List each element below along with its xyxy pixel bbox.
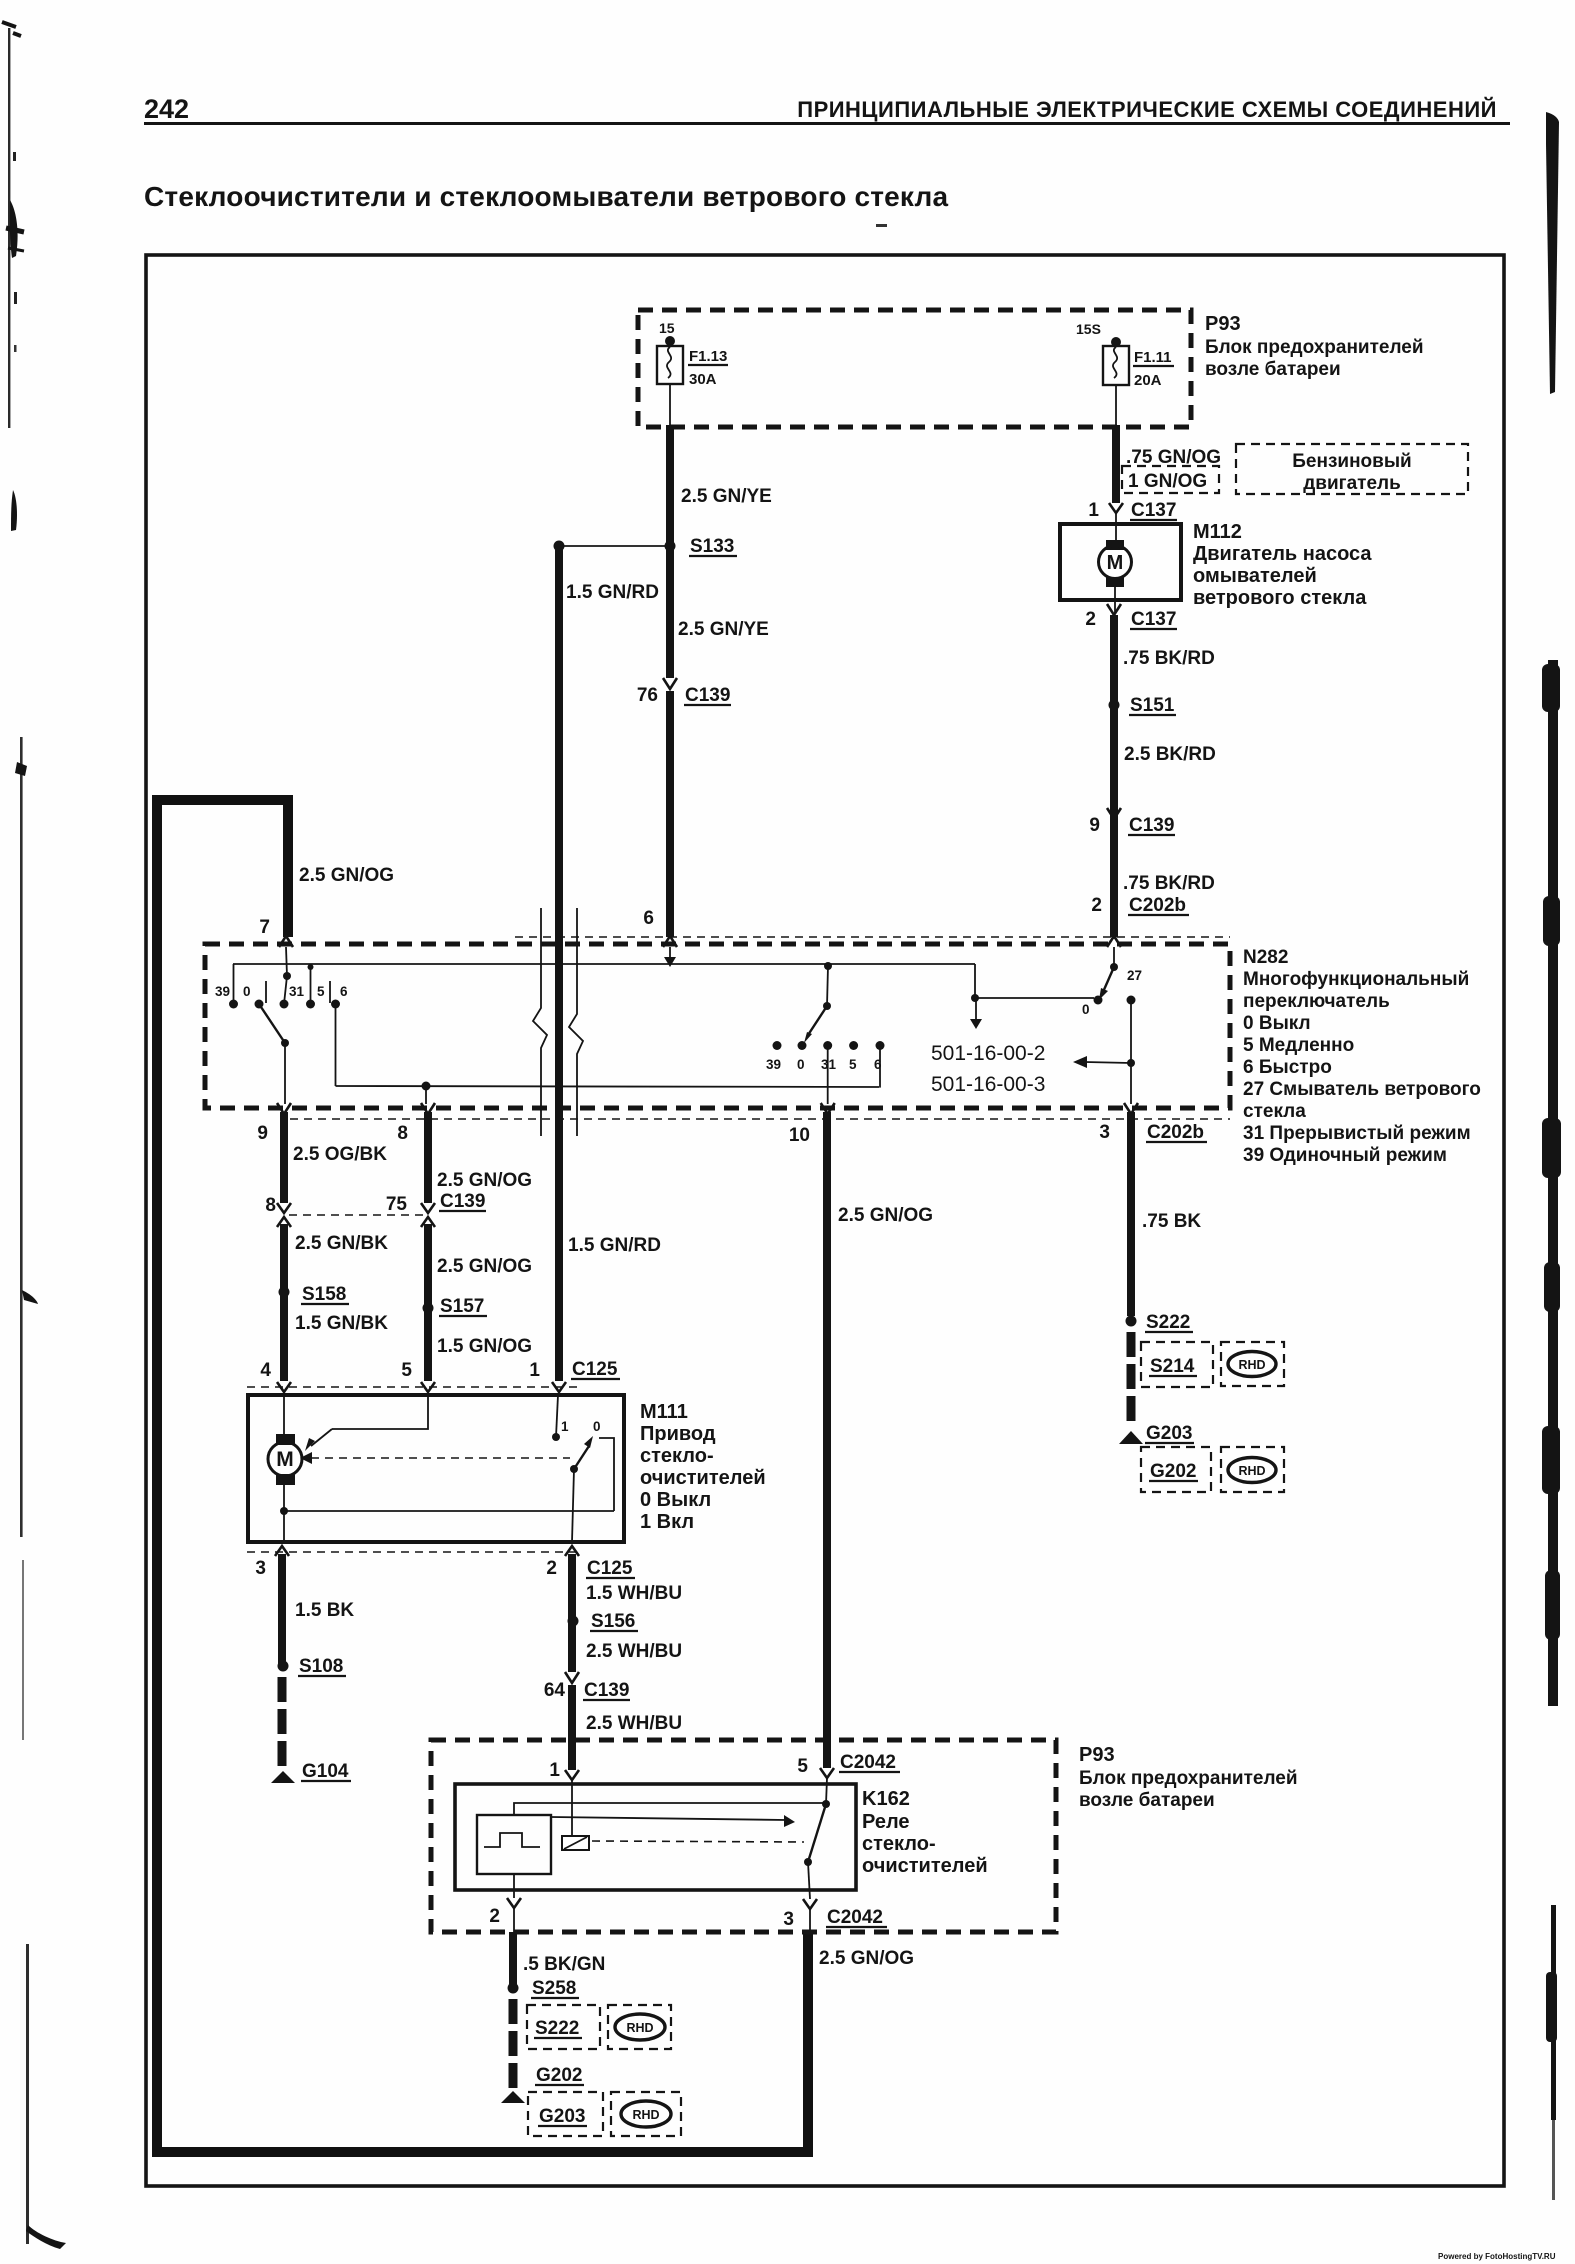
svg-text:P93: P93 bbox=[1079, 1744, 1115, 1766]
svg-text:2.5 GN/OG: 2.5 GN/OG bbox=[437, 1256, 532, 1277]
svg-text:1.5 GN/BK: 1.5 GN/BK bbox=[295, 1313, 388, 1334]
svg-text:2.5 GN/YE: 2.5 GN/YE bbox=[678, 619, 769, 640]
svg-text:5: 5 bbox=[317, 984, 325, 999]
svg-text:стекло-: стекло- bbox=[862, 1833, 936, 1855]
svg-text:10: 10 bbox=[789, 1125, 810, 1146]
svg-text:C139: C139 bbox=[685, 685, 730, 706]
svg-text:Блок предохранителей: Блок предохранителей bbox=[1205, 337, 1424, 358]
svg-text:2.5 GN/OG: 2.5 GN/OG bbox=[819, 1948, 914, 1969]
svg-text:очистителей: очистителей bbox=[862, 1855, 988, 1877]
svg-text:2.5 WH/BU: 2.5 WH/BU bbox=[586, 1641, 682, 1662]
svg-text:2: 2 bbox=[1091, 895, 1102, 916]
svg-text:39 Одиночный режим: 39 Одиночный режим bbox=[1243, 1145, 1447, 1166]
svg-text:.75 BK/RD: .75 BK/RD bbox=[1123, 873, 1215, 894]
svg-text:0: 0 bbox=[243, 984, 251, 999]
svg-text:двигатель: двигатель bbox=[1303, 473, 1401, 494]
svg-text:2.5 GN/OG: 2.5 GN/OG bbox=[437, 1170, 532, 1191]
svg-text:.5 BK/GN: .5 BK/GN bbox=[523, 1954, 605, 1975]
svg-text:39: 39 bbox=[766, 1057, 781, 1072]
svg-text:242: 242 bbox=[144, 94, 189, 124]
svg-text:1 GN/OG: 1 GN/OG bbox=[1128, 471, 1207, 492]
svg-text:ветрового стекла: ветрового стекла bbox=[1193, 587, 1367, 609]
svg-text:1: 1 bbox=[1088, 500, 1099, 521]
svg-text:75: 75 bbox=[386, 1194, 408, 1215]
svg-text:2.5 OG/BK: 2.5 OG/BK bbox=[293, 1144, 387, 1165]
svg-text:1.5 GN/RD: 1.5 GN/RD bbox=[568, 1235, 661, 1256]
svg-text:5 Медленно: 5 Медленно bbox=[1243, 1035, 1354, 1056]
svg-text:0: 0 bbox=[797, 1057, 805, 1072]
svg-text:0 Выкл: 0 Выкл bbox=[640, 1489, 711, 1511]
svg-text:5: 5 bbox=[849, 1057, 857, 1072]
svg-text:RHD: RHD bbox=[626, 2021, 653, 2035]
svg-text:31 Прерывистый режим: 31 Прерывистый режим bbox=[1243, 1123, 1471, 1144]
svg-text:возле батареи: возле батареи bbox=[1205, 359, 1341, 380]
svg-text:стекло-: стекло- bbox=[640, 1445, 714, 1467]
svg-text:3: 3 bbox=[1099, 1122, 1110, 1143]
svg-text:C137: C137 bbox=[1131, 500, 1176, 521]
svg-text:S151: S151 bbox=[1130, 695, 1175, 716]
svg-text:F1.13: F1.13 bbox=[689, 348, 727, 365]
svg-text:S133: S133 bbox=[690, 536, 734, 557]
svg-text:501-16-00-2: 501-16-00-2 bbox=[931, 1042, 1045, 1065]
svg-text:0: 0 bbox=[593, 1419, 601, 1434]
svg-text:2.5 BK/RD: 2.5 BK/RD bbox=[1124, 744, 1216, 765]
svg-text:C125: C125 bbox=[587, 1558, 633, 1579]
svg-text:Привод: Привод bbox=[640, 1423, 716, 1445]
svg-text:0: 0 bbox=[1082, 1002, 1090, 1017]
svg-text:2.5 GN/YE: 2.5 GN/YE bbox=[681, 486, 772, 507]
svg-text:K162: K162 bbox=[862, 1788, 910, 1810]
svg-text:переключатель: переключатель bbox=[1243, 991, 1390, 1012]
svg-text:5: 5 bbox=[797, 1756, 808, 1777]
svg-text:30A: 30A bbox=[689, 371, 717, 388]
svg-text:S156: S156 bbox=[591, 1611, 635, 1632]
svg-text:1.5 WH/BU: 1.5 WH/BU bbox=[586, 1583, 682, 1604]
svg-text:5: 5 bbox=[401, 1360, 412, 1381]
svg-text:RHD: RHD bbox=[1238, 1358, 1265, 1372]
svg-text:31: 31 bbox=[289, 984, 305, 999]
svg-text:S157: S157 bbox=[440, 1296, 484, 1317]
svg-text:3: 3 bbox=[255, 1558, 266, 1579]
svg-text:C137: C137 bbox=[1131, 609, 1176, 630]
svg-text:возле батареи: возле батареи bbox=[1079, 1790, 1215, 1811]
svg-text:F1.11: F1.11 bbox=[1134, 349, 1172, 366]
svg-text:6: 6 bbox=[340, 984, 348, 999]
svg-text:2.5 GN/OG: 2.5 GN/OG bbox=[838, 1205, 933, 1226]
svg-text:C139: C139 bbox=[1129, 815, 1174, 836]
svg-text:S158: S158 bbox=[302, 1284, 346, 1305]
svg-text:RHD: RHD bbox=[1238, 1464, 1265, 1478]
svg-text:15S: 15S bbox=[1076, 321, 1101, 337]
svg-text:Реле: Реле bbox=[862, 1811, 910, 1833]
svg-text:C2042: C2042 bbox=[840, 1752, 896, 1773]
svg-text:.75 GN/OG: .75 GN/OG bbox=[1126, 447, 1221, 468]
svg-text:3: 3 bbox=[783, 1909, 794, 1930]
svg-text:1: 1 bbox=[549, 1760, 560, 1781]
svg-text:76: 76 bbox=[637, 685, 658, 706]
svg-text:7: 7 bbox=[259, 917, 270, 938]
svg-text:20A: 20A bbox=[1134, 372, 1162, 389]
svg-text:омывателей: омывателей bbox=[1193, 565, 1317, 587]
svg-text:C202b: C202b bbox=[1147, 1122, 1204, 1143]
svg-text:C202b: C202b bbox=[1129, 895, 1186, 916]
svg-text:очистителей: очистителей bbox=[640, 1467, 766, 1489]
svg-text:501-16-00-3: 501-16-00-3 bbox=[931, 1073, 1045, 1096]
svg-text:C139: C139 bbox=[440, 1191, 485, 1212]
svg-text:1.5 BK: 1.5 BK bbox=[295, 1600, 354, 1621]
svg-text:2: 2 bbox=[1085, 609, 1096, 630]
svg-text:S214: S214 bbox=[1150, 1356, 1195, 1377]
svg-text:Бензиновый: Бензиновый bbox=[1292, 451, 1412, 472]
svg-text:S258: S258 bbox=[532, 1978, 576, 1999]
svg-text:S108: S108 bbox=[299, 1656, 343, 1677]
svg-text:4: 4 bbox=[260, 1360, 271, 1381]
svg-text:G203: G203 bbox=[1146, 1423, 1192, 1444]
svg-text:Powered by FotoHostingTV.RU: Powered by FotoHostingTV.RU bbox=[1438, 2252, 1556, 2261]
svg-text:27 Смыватель ветрового: 27 Смыватель ветрового bbox=[1243, 1079, 1481, 1100]
svg-text:2.5 GN/OG: 2.5 GN/OG bbox=[299, 865, 394, 886]
svg-text:9: 9 bbox=[1089, 815, 1100, 836]
svg-text:S222: S222 bbox=[535, 2018, 579, 2039]
svg-text:G202: G202 bbox=[536, 2065, 582, 2086]
svg-text:2.5 WH/BU: 2.5 WH/BU bbox=[586, 1713, 682, 1734]
svg-text:стекла: стекла bbox=[1243, 1101, 1306, 1122]
svg-text:C139: C139 bbox=[584, 1680, 629, 1701]
svg-text:1: 1 bbox=[529, 1360, 540, 1381]
svg-text:.75 BK: .75 BK bbox=[1142, 1211, 1201, 1232]
svg-text:1: 1 bbox=[561, 1419, 569, 1434]
svg-text:Двигатель насоса: Двигатель насоса bbox=[1193, 543, 1372, 565]
svg-text:6: 6 bbox=[643, 908, 654, 929]
svg-text:2: 2 bbox=[489, 1906, 500, 1927]
svg-text:C125: C125 bbox=[572, 1359, 618, 1380]
svg-text:M: M bbox=[276, 1448, 294, 1471]
svg-text:64: 64 bbox=[544, 1680, 566, 1701]
svg-text:Блок предохранителей: Блок предохранителей bbox=[1079, 1768, 1298, 1789]
svg-text:1 Вкл: 1 Вкл bbox=[640, 1511, 694, 1533]
svg-text:ПРИНЦИПИАЛЬНЫЕ ЭЛЕКТРИЧЕСКИЕ С: ПРИНЦИПИАЛЬНЫЕ ЭЛЕКТРИЧЕСКИЕ СХЕМЫ СОЕДИ… bbox=[797, 97, 1497, 122]
svg-text:1.5 GN/RD: 1.5 GN/RD bbox=[566, 582, 659, 603]
svg-text:39: 39 bbox=[215, 984, 230, 999]
svg-text:27: 27 bbox=[1127, 968, 1142, 983]
svg-text:Стеклоочистители и стеклоомыва: Стеклоочистители и стеклоомыватели ветро… bbox=[144, 181, 948, 212]
svg-text:M: M bbox=[1107, 552, 1124, 574]
svg-text:9: 9 bbox=[257, 1123, 268, 1144]
svg-text:RHD: RHD bbox=[632, 2108, 659, 2122]
svg-text:S222: S222 bbox=[1146, 1312, 1190, 1333]
svg-text:P93: P93 bbox=[1205, 313, 1241, 335]
svg-text:.75 BK/RD: .75 BK/RD bbox=[1123, 648, 1215, 669]
svg-text:15: 15 bbox=[659, 320, 675, 336]
svg-text:2.5 GN/BK: 2.5 GN/BK bbox=[295, 1233, 388, 1254]
svg-text:2: 2 bbox=[546, 1558, 557, 1579]
svg-text:8: 8 bbox=[265, 1195, 276, 1216]
svg-text:G104: G104 bbox=[302, 1761, 349, 1782]
svg-text:G202: G202 bbox=[1150, 1461, 1196, 1482]
svg-text:M111: M111 bbox=[640, 1401, 688, 1423]
svg-text:N282: N282 bbox=[1243, 947, 1288, 968]
svg-text:M112: M112 bbox=[1193, 521, 1242, 543]
svg-text:1.5 GN/OG: 1.5 GN/OG bbox=[437, 1336, 532, 1357]
svg-text:6 Быстро: 6 Быстро bbox=[1243, 1057, 1332, 1078]
svg-text:C2042: C2042 bbox=[827, 1907, 883, 1928]
svg-text:8: 8 bbox=[397, 1123, 408, 1144]
svg-text:Многофункциональный: Многофункциональный bbox=[1243, 969, 1469, 990]
svg-text:G203: G203 bbox=[539, 2106, 585, 2127]
svg-text:0 Выкл: 0 Выкл bbox=[1243, 1013, 1311, 1034]
svg-text:31: 31 bbox=[821, 1057, 837, 1072]
